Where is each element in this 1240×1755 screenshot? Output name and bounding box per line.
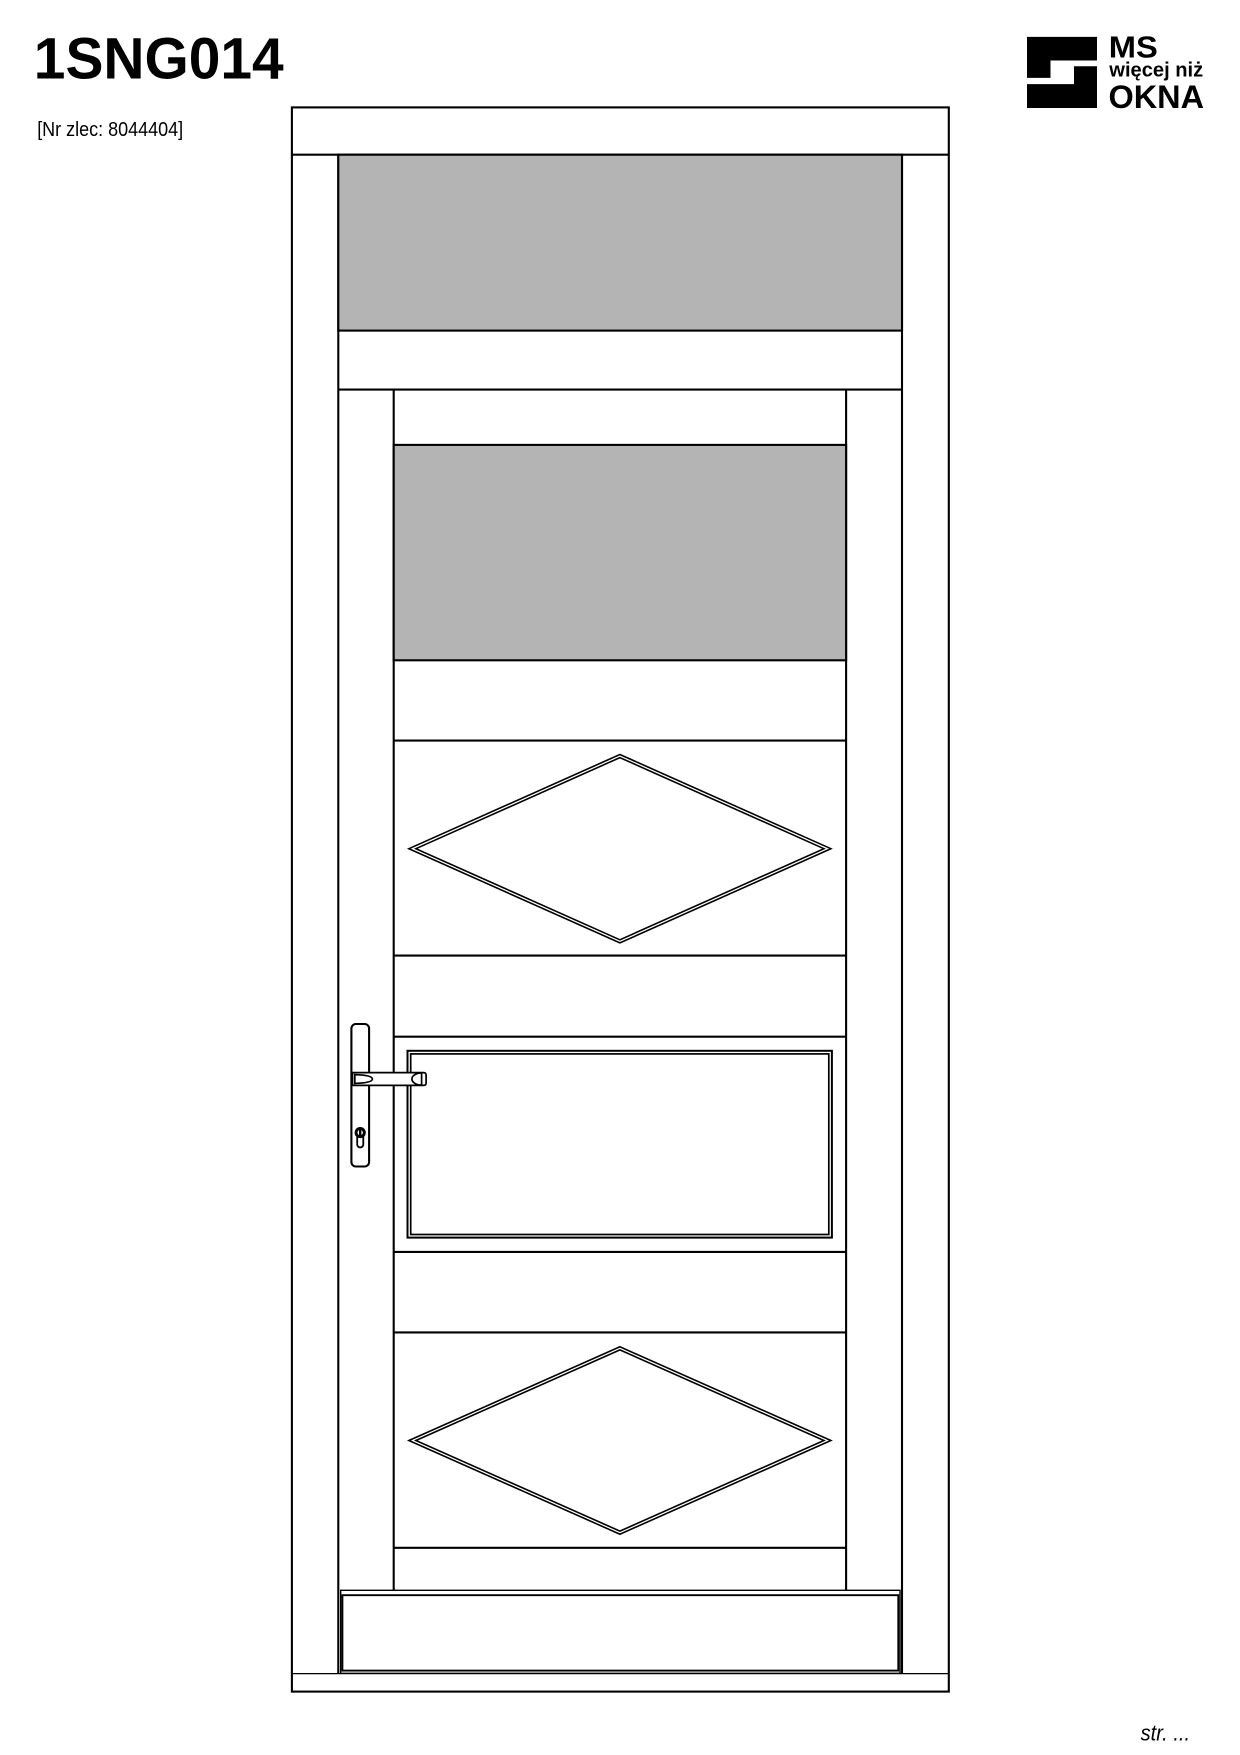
svg-text:str. ...: str. ... <box>1141 1720 1191 1745</box>
svg-text:1SNG014: 1SNG014 <box>34 26 284 91</box>
svg-text:OKNA: OKNA <box>1109 79 1205 115</box>
svg-text:[Nr zlec: 8044404]: [Nr zlec: 8044404] <box>37 119 183 141</box>
